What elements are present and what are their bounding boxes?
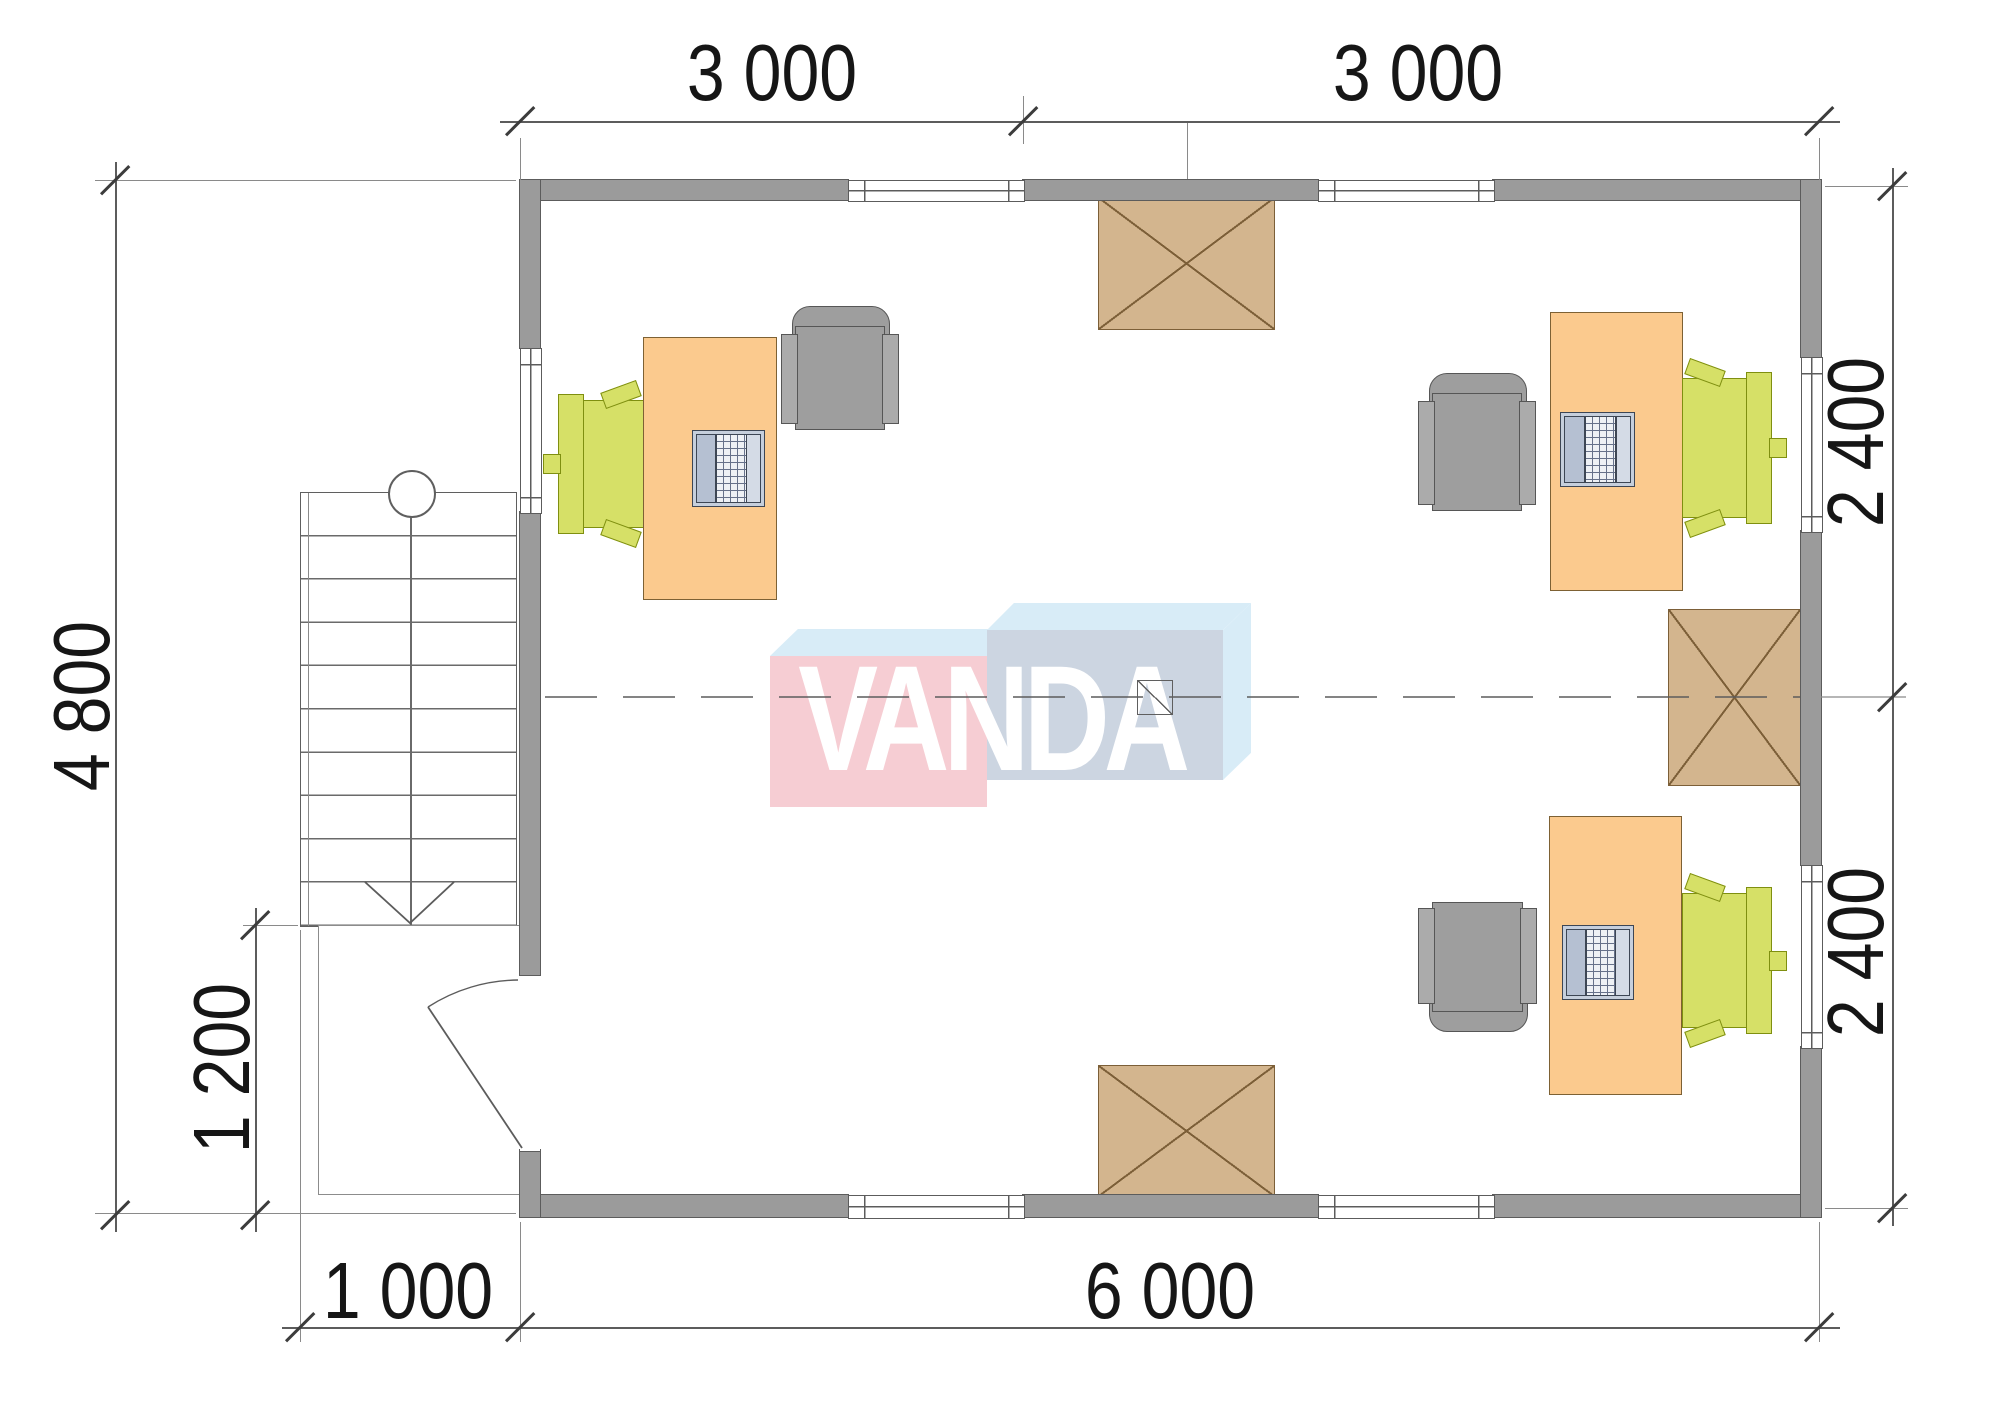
wall-segment bbox=[540, 1195, 848, 1217]
wall-segment bbox=[1023, 180, 1318, 200]
armchair-armrest bbox=[781, 334, 798, 424]
office-chair bbox=[1682, 893, 1772, 1028]
wall-segment bbox=[1493, 1195, 1801, 1217]
logo-text: VANDA bbox=[798, 643, 1184, 793]
chair-headrest bbox=[1769, 438, 1787, 458]
door-opening bbox=[520, 975, 540, 1152]
vent-shaft-right bbox=[1668, 609, 1801, 786]
wall-segment bbox=[540, 180, 848, 200]
extension-line bbox=[1819, 138, 1820, 180]
wall-segment bbox=[1023, 1195, 1318, 1217]
dimension-label-left-height: 4 800 bbox=[42, 621, 122, 791]
armchair bbox=[1420, 902, 1535, 1020]
vent-shaft-top bbox=[1098, 197, 1275, 330]
laptop-screen bbox=[696, 434, 716, 503]
laptop-screen bbox=[1564, 416, 1585, 483]
logo-right-top-face bbox=[987, 603, 1251, 630]
office-chair bbox=[1682, 378, 1772, 518]
chair-headrest bbox=[1769, 951, 1787, 971]
wall-segment bbox=[1493, 180, 1801, 200]
dimension-label-bottom-porch: 1 000 bbox=[323, 1251, 493, 1331]
extension-line bbox=[300, 930, 301, 1342]
laptop-side bbox=[746, 434, 761, 503]
armchair-armrest bbox=[882, 334, 899, 424]
laptop bbox=[692, 430, 765, 507]
extension-line bbox=[1825, 1208, 1908, 1209]
dimension-label-right-upper: 2 400 bbox=[1816, 357, 1896, 527]
extension-line bbox=[95, 1213, 516, 1214]
wall-segment bbox=[520, 1150, 540, 1217]
chair-back bbox=[558, 394, 584, 534]
armchair-armrest bbox=[1519, 401, 1536, 505]
laptop-screen bbox=[1566, 929, 1586, 996]
extension-line bbox=[1825, 186, 1908, 187]
stair-stringer-line bbox=[308, 493, 309, 926]
stair-center-line bbox=[410, 493, 412, 926]
wall-segment bbox=[1801, 531, 1821, 865]
armchair bbox=[1420, 385, 1534, 511]
laptop-side bbox=[1615, 929, 1630, 996]
stair-column-symbol bbox=[388, 470, 436, 518]
dimension-label-top-right: 3 000 bbox=[1333, 33, 1503, 113]
laptop-keyboard bbox=[716, 434, 746, 503]
extension-line bbox=[1187, 121, 1188, 179]
extension-line bbox=[95, 180, 516, 181]
armchair-armrest bbox=[1418, 401, 1435, 505]
floor-plan-canvas: VANDA bbox=[0, 0, 2000, 1410]
laptop-side bbox=[1616, 416, 1631, 483]
vent-shaft-bottom bbox=[1098, 1065, 1275, 1197]
dimension-label-bottom-width: 6 000 bbox=[1085, 1251, 1255, 1331]
window bbox=[848, 1195, 1025, 1219]
logo-right-side-face bbox=[1223, 603, 1251, 780]
laptop bbox=[1562, 925, 1634, 1000]
wall-segment bbox=[1801, 180, 1821, 357]
dimension-label-porch-height: 1 200 bbox=[182, 983, 262, 1153]
extension-line bbox=[520, 138, 521, 180]
armchair-armrest bbox=[1418, 908, 1435, 1004]
window bbox=[848, 180, 1025, 202]
staircase bbox=[300, 492, 517, 927]
laptop bbox=[1560, 412, 1635, 487]
armchair bbox=[783, 318, 897, 430]
window bbox=[520, 348, 542, 514]
entrance-porch bbox=[318, 925, 522, 1195]
wall-segment bbox=[520, 180, 540, 348]
armchair-armrest bbox=[1520, 908, 1537, 1004]
dimension-label-top-left: 3 000 bbox=[687, 33, 857, 113]
window bbox=[1318, 1195, 1495, 1219]
laptop-keyboard bbox=[1585, 416, 1616, 483]
wall-segment bbox=[1801, 1047, 1821, 1217]
axis-marker bbox=[1137, 680, 1173, 715]
armchair-seat bbox=[1432, 393, 1522, 511]
armchair-seat bbox=[795, 326, 885, 430]
chair-headrest bbox=[543, 454, 561, 474]
armchair-seat bbox=[1432, 902, 1523, 1012]
window bbox=[1318, 180, 1495, 202]
dimension-label-right-lower: 2 400 bbox=[1816, 867, 1896, 1037]
dimension-line bbox=[500, 121, 1840, 123]
laptop-keyboard bbox=[1586, 929, 1616, 996]
wall-segment bbox=[520, 512, 540, 975]
office-chair bbox=[558, 400, 644, 528]
